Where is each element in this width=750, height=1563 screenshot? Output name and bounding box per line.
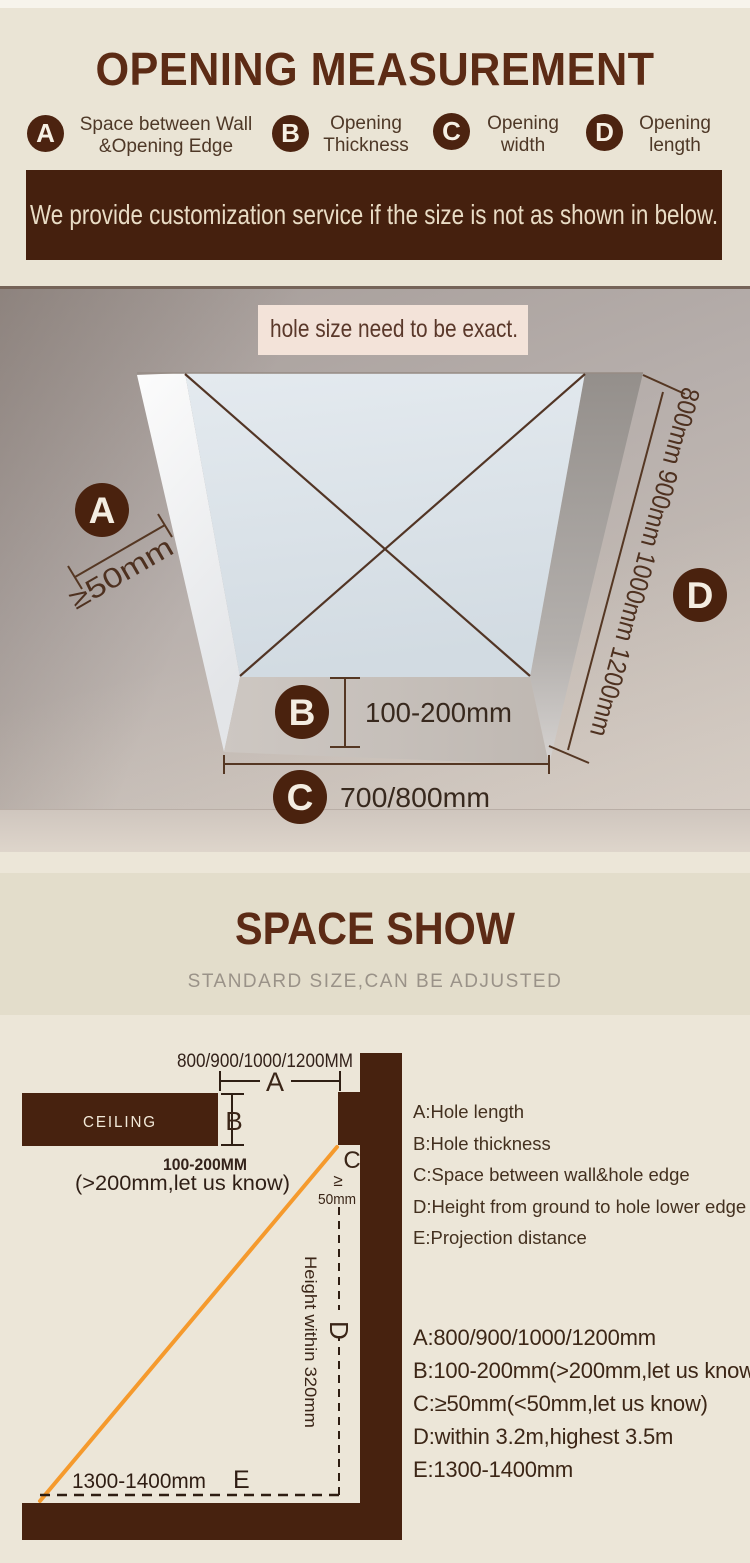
def-d: D:Height from ground to hole lower edge [413,1191,746,1223]
def-a: A:Hole length [413,1096,746,1128]
b-marker-letter: B [289,692,316,733]
ceiling-label: CEILING [83,1114,157,1131]
diagram-d-label: D [324,1321,354,1340]
space-diagram: 800/900/1000/1200MM A CEILING B 100-200M… [0,1040,410,1563]
height-note-text: Height within 320mm [301,1256,320,1428]
legend-d-line1: Opening [629,113,721,135]
floor-bar [22,1503,402,1540]
def-e: E:Projection distance [413,1222,746,1254]
space-show-subtitle: STANDARD SIZE,CAN BE ADJUSTED [0,971,750,993]
legend-values: A:800/900/1000/1200mm B:100-200mm(>200mm… [413,1321,750,1486]
a-marker-letter: A [89,490,116,531]
legend-b-badge: B [272,115,309,152]
val-d: D:within 3.2m,highest 3.5m [413,1420,750,1453]
diagram-c-dim: 50mm [318,1191,356,1208]
legend-c-label: Opening width [477,113,569,156]
customization-banner-text: We provide customization service if the … [30,199,718,231]
b-value-text: 100-200mm [365,697,512,728]
customization-banner: We provide customization service if the … [26,170,722,260]
diagram-c-label: C [343,1147,360,1174]
legend-c-line1: Opening [477,113,569,135]
def-c: C:Space between wall&hole edge [413,1159,746,1191]
legend-a-line2: &Opening Edge [74,136,258,158]
space-show-title: SPACE SHOW [30,903,720,955]
note-text: hole size need to be exact. [270,315,518,343]
c-marker-letter: C [287,777,314,818]
hole-annotation-layer: hole size need to be exact. ≥50mm A B 10… [0,286,750,852]
val-a: A:800/900/1000/1200mm [413,1321,750,1354]
diagram-e-dim: 1300-1400mm [72,1470,206,1493]
val-b: B:100-200mm(>200mm,let us know) [413,1354,750,1387]
legend-c-line2: width [477,135,569,157]
product-infographic-page: OPENING MEASUREMENT A Space between Wall… [0,0,750,1563]
legend-b-label: Opening Thickness [318,113,414,156]
opening-measurement-section: OPENING MEASUREMENT A Space between Wall… [0,0,750,286]
page-title: OPENING MEASUREMENT [23,42,728,96]
diagram-b-note: (>200mm,let us know) [75,1172,290,1195]
ladder-projection-line [40,1147,337,1501]
legend-b-line1: Opening [318,113,414,135]
legend-a-label: Space between Wall &Opening Edge [74,114,258,157]
diagram-b-label: B [225,1106,242,1136]
top-strip [0,0,750,8]
def-b: B:Hole thickness [413,1128,746,1160]
val-c: C:≥50mm(<50mm,let us know) [413,1387,750,1420]
val-e: E:1300-1400mm [413,1453,750,1486]
legend-d-badge: D [586,114,623,151]
legend-b-line2: Thickness [318,135,414,157]
legend-definitions: A:Hole length B:Hole thickness C:Space b… [413,1096,746,1254]
c-value-text: 700/800mm [340,782,490,813]
diagram-e-label: E [233,1466,250,1494]
skylight-face [185,373,585,677]
ceiling-hole-illustration: hole size need to be exact. ≥50mm A B 10… [0,286,750,852]
d-marker-letter: D [687,575,714,616]
diagram-c-gte: ≥ [333,1171,342,1190]
diagram-a-label: A [266,1067,284,1097]
legend-a-badge: A [27,115,64,152]
wall-bar [360,1053,402,1540]
legend-d-label: Opening length [629,113,721,156]
legend-d-line2: length [629,135,721,157]
hole-edge-protrusion [338,1092,360,1145]
legend-a-line1: Space between Wall [74,114,258,136]
legend-c-badge: C [433,113,470,150]
